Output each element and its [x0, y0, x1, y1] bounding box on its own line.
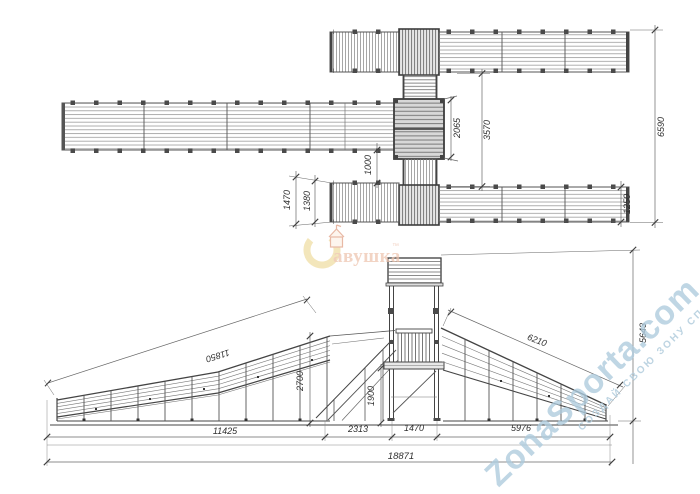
- dim-plan-6590: 6590: [656, 117, 666, 137]
- dim-elev-2313: 2313: [347, 424, 368, 434]
- dim-plan-1470: 1470: [282, 190, 292, 210]
- logo-house-icon: [329, 225, 344, 247]
- dim-plan-1380: 1380: [302, 191, 312, 211]
- plan-bottom-tower: [399, 185, 439, 225]
- plan-top-right-ramp: [439, 30, 629, 74]
- dim-elev-2700: 2700: [295, 371, 305, 392]
- plan-top-tower: [399, 29, 439, 75]
- plan-lower-bridge: [403, 159, 437, 185]
- plan-bottom-left-segment: [330, 181, 399, 225]
- tower-posts: [390, 286, 439, 421]
- dim-plan-3570: 3570: [482, 120, 492, 140]
- dim-plan-1000: 1000: [363, 155, 373, 175]
- logo-brand-text: авушка: [333, 246, 401, 267]
- plan-bottom-right-ramp: [439, 185, 629, 224]
- dim-plan-1250: 1250: [622, 194, 632, 214]
- plan-long-ramp: [62, 101, 394, 154]
- elev-left-ramp: [57, 336, 330, 421]
- elev-stair: [316, 331, 398, 422]
- plan-posts-row: [64, 101, 394, 106]
- logo-tm-mark: ™: [392, 243, 399, 250]
- dim-elev-11425: 11425: [213, 426, 238, 436]
- plan-upper-bridge: [403, 75, 437, 99]
- brand-logo-watermark: авушка ™: [301, 225, 401, 271]
- plan-top-left-segment: [330, 30, 400, 74]
- dim-elev-1900: 1900: [366, 386, 376, 406]
- drawing-sheet: 2065 3570 1000 6590 1250 1470 1380: [0, 0, 700, 494]
- elev-tower: [384, 258, 444, 421]
- zonasporta-watermark: ZonaSporta.com СОЗДАЙ СВОЮ ЗОНУ СПОРТА: [478, 253, 700, 494]
- plan-view: 2065 3570 1000 6590 1250 1470 1380: [62, 25, 666, 229]
- dim-elev-18871: 18871: [388, 451, 414, 462]
- dim-elev-11850: 11850: [205, 348, 231, 365]
- dim-elev-1470: 1470: [404, 423, 424, 433]
- plan-central-platform: [394, 99, 444, 159]
- watermark-site-text: ZonaSporta.com: [478, 270, 700, 493]
- dim-plan-2065: 2065: [452, 117, 462, 139]
- ramp-technical-drawing: 2065 3570 1000 6590 1250 1470 1380: [0, 0, 700, 494]
